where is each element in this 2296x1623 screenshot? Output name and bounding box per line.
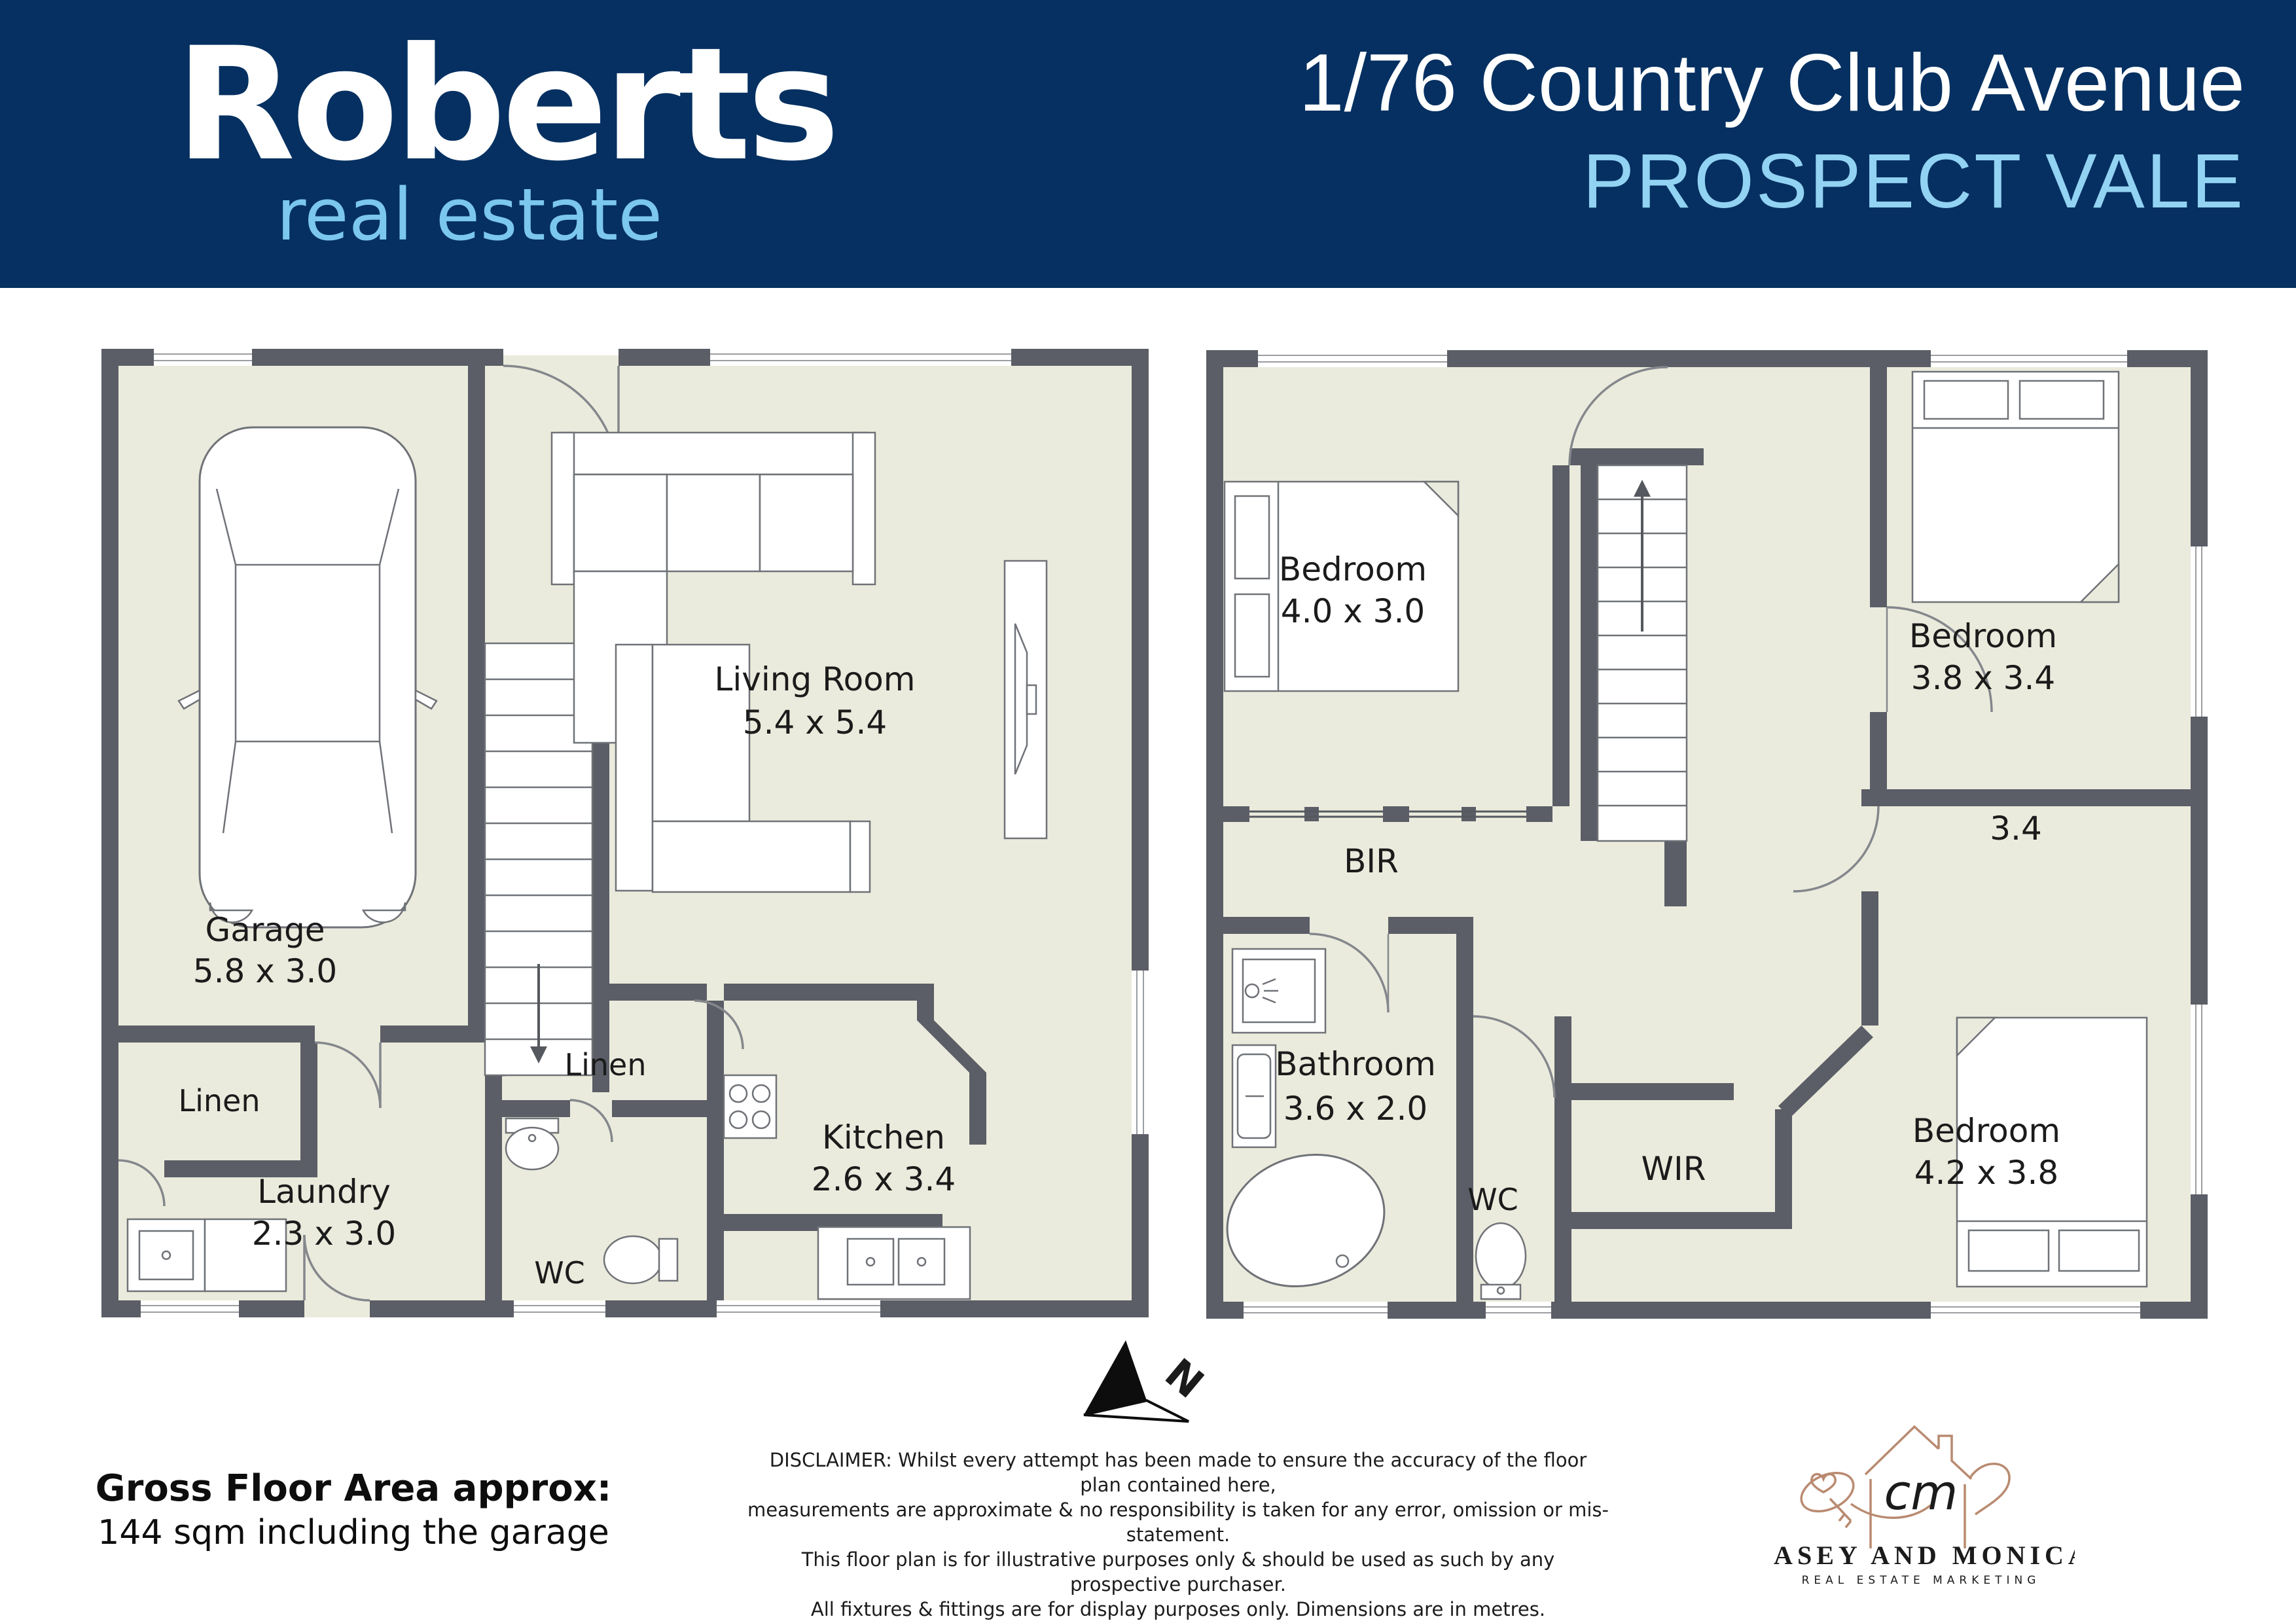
marketing-logo: cm CASEY AND MONICA REAL ESTATE MARKETIN… [1767,1393,2075,1589]
wc-basin [506,1118,558,1169]
bed-bedroom2 [1912,372,2119,602]
living-room-label: Living Room [715,660,916,698]
gfa-value: 144 sqm including the garage [65,1512,641,1554]
bedroom2-label: Bedroom [1909,617,2057,655]
bedroom2-dims: 3.8 x 3.4 [1911,659,2055,697]
vanity [1232,1045,1276,1147]
ground-floor-plan: Garage 5.8 x 3.0 Living Room 5.4 x 5.4 L… [101,349,1149,1317]
floorplan-page: Roberts real estate 1/76 Country Club Av… [0,0,2296,1623]
bed-bedroom3 [1957,1018,2147,1287]
disclaimer-block: DISCLAIMER: Whilst every attempt has bee… [746,1448,1610,1623]
listing-title: 1/76 Country Club Avenue PROSPECT VALE [1299,34,2245,230]
wir-label: WIR [1641,1150,1706,1188]
bedroom3-label: Bedroom [1912,1112,2060,1150]
kitchen-label: Kitchen [822,1118,945,1156]
north-compass-icon: N [1079,1335,1210,1433]
shower [1232,949,1325,1033]
bedroom3-dims: 4.2 x 3.8 [1914,1154,2058,1192]
bathroom-label: Bathroom [1275,1045,1436,1083]
cooktop [724,1075,776,1138]
compass-north-label: N [1156,1349,1210,1408]
bedroom1-dims: 4.0 x 3.0 [1281,592,1425,630]
listing-suburb: PROSPECT VALE [1299,132,2245,230]
bir-label: BIR [1344,842,1399,880]
upper-floor-plan: Bedroom 4.0 x 3.0 Bedroom 3.8 x 3.4 Bedr… [1206,350,2208,1319]
marketing-logo-name: CASEY AND MONICA [1767,1541,2075,1570]
hall-dim-label: 3.4 [1990,810,2042,847]
garage-dims: 5.8 x 3.0 [193,952,337,990]
kitchen-sink-bench [818,1227,970,1299]
marketing-logo-initials: cm [1884,1465,1958,1521]
disclaimer-line: DISCLAIMER: Whilst every attempt has bee… [746,1448,1610,1497]
gfa-title: Gross Floor Area approx: [65,1466,641,1512]
gross-floor-area: Gross Floor Area approx: 144 sqm includi… [65,1466,641,1554]
listing-address: 1/76 Country Club Avenue [1299,34,2245,132]
laundry-label: Laundry [257,1173,391,1211]
wc-ground-label: WC [534,1255,585,1291]
agency-logo-name: Roberts [175,24,662,187]
upper-toilet [1476,1223,1526,1299]
wc-upper-label: WC [1467,1182,1518,1217]
kitchen-dims: 2.6 x 3.4 [812,1160,956,1198]
disclaimer-line: All fixtures & fittings are for display … [746,1597,1610,1622]
agency-logo: Roberts real estate [175,24,662,251]
linen-mid-label: Linen [564,1047,646,1082]
laundry-dims: 2.3 x 3.0 [252,1215,396,1253]
garage-label: Garage [205,911,325,949]
tv-unit [1005,561,1047,838]
living-room-dims: 5.4 x 5.4 [743,704,887,741]
bathroom-dims: 3.6 x 2.0 [1283,1090,1427,1128]
wc-toilet [604,1236,677,1283]
header-band: Roberts real estate 1/76 Country Club Av… [0,0,2296,288]
upper-stairs [1598,465,1687,841]
marketing-logo-tagline: REAL ESTATE MARKETING [1802,1574,2041,1587]
bedroom1-label: Bedroom [1279,550,1427,588]
disclaimer-line: measurements are approximate & no respon… [746,1497,1610,1547]
linen-left-label: Linen [178,1083,260,1118]
car-icon [179,427,437,927]
disclaimer-line: This floor plan is for illustrative purp… [746,1547,1610,1597]
